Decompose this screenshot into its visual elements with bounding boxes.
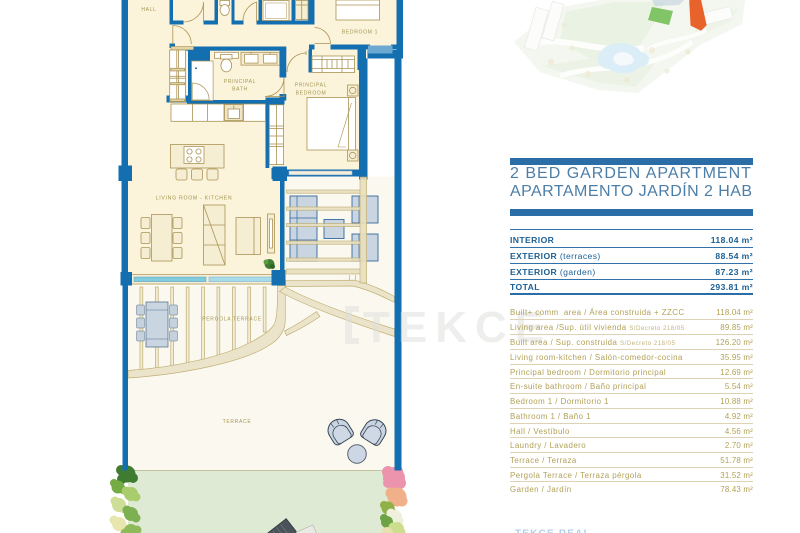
svg-text:PRINCIPAL: PRINCIPAL	[224, 79, 256, 85]
svg-text:BEDROOM 1: BEDROOM 1	[342, 30, 378, 36]
svg-text:PERGOLA TERRACE: PERGOLA TERRACE	[202, 317, 262, 323]
svg-text:BEDROOM: BEDROOM	[296, 91, 327, 97]
svg-text:TERRACE: TERRACE	[223, 419, 252, 425]
svg-text:LIVING ROOM - KITCHEN: LIVING ROOM - KITCHEN	[156, 196, 233, 202]
svg-text:PRINCIPAL: PRINCIPAL	[295, 83, 327, 89]
svg-text:HALL: HALL	[141, 7, 156, 13]
svg-text:BATH: BATH	[232, 87, 248, 93]
svg-text:TEKCE REAL: TEKCE REAL	[515, 529, 591, 533]
